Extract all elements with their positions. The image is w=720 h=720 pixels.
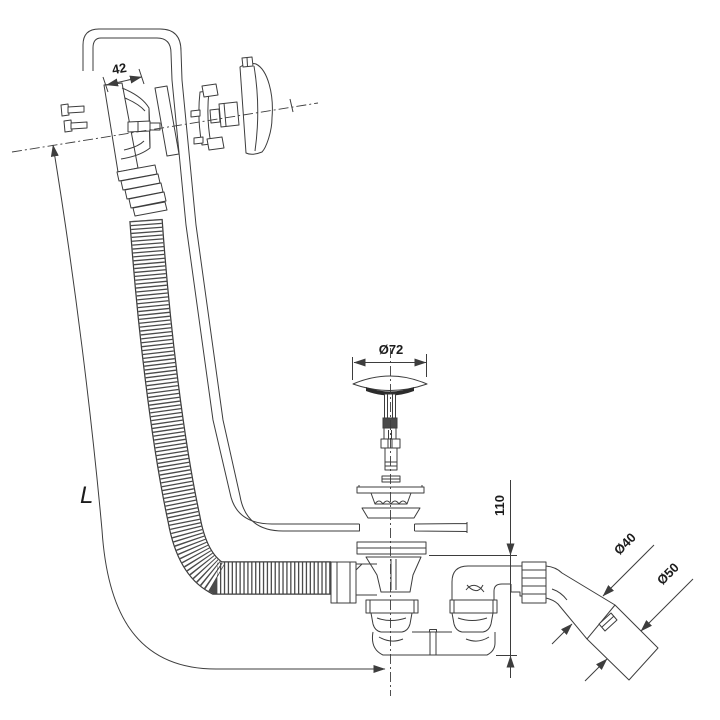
trap-right-nut — [450, 600, 497, 632]
dim-label-42: 42 — [111, 60, 128, 77]
tub-floor-right — [415, 522, 468, 533]
drawing-canvas: 42 Ø72 110 L Ø40 Ø50 — [0, 0, 720, 720]
cone-gasket — [362, 508, 420, 518]
overflow-assembly — [61, 57, 272, 216]
overflow-gasket — [155, 86, 179, 156]
waste-funnel-body — [356, 557, 421, 595]
overflow-tailpiece-rings — [117, 165, 167, 216]
waste-flange — [357, 542, 426, 554]
technical-drawing: 42 Ø72 110 L Ø40 Ø50 — [0, 0, 720, 720]
dim-plug-diameter: Ø72 — [353, 342, 427, 380]
outlet-coupling-nut — [522, 562, 546, 603]
plug-cap — [353, 376, 427, 391]
elbow-cross-mark — [466, 585, 484, 592]
outlet-elbow — [452, 566, 522, 600]
waste-body-assembly — [356, 542, 658, 680]
dim-label-o50: Ø50 — [654, 560, 682, 588]
overflow-screws — [61, 104, 87, 132]
overflow-cable-stem — [128, 121, 150, 132]
drain-plug-assembly — [353, 376, 427, 518]
overflow-knob — [240, 57, 272, 154]
plug-washer — [382, 476, 400, 482]
centerlines — [12, 99, 391, 696]
dim-label-l: L — [80, 482, 93, 509]
trap-left-nut — [366, 600, 418, 632]
dim-label-110: 110 — [492, 495, 507, 516]
overflow-body — [104, 83, 160, 172]
dim-label-o40: Ø40 — [611, 530, 639, 558]
dim-label-o72: Ø72 — [379, 342, 404, 357]
hose-union-nut — [331, 562, 356, 603]
dim-waste-height: 110 — [429, 480, 517, 678]
plug-stem — [383, 394, 397, 441]
overflow-adapter — [210, 102, 239, 127]
